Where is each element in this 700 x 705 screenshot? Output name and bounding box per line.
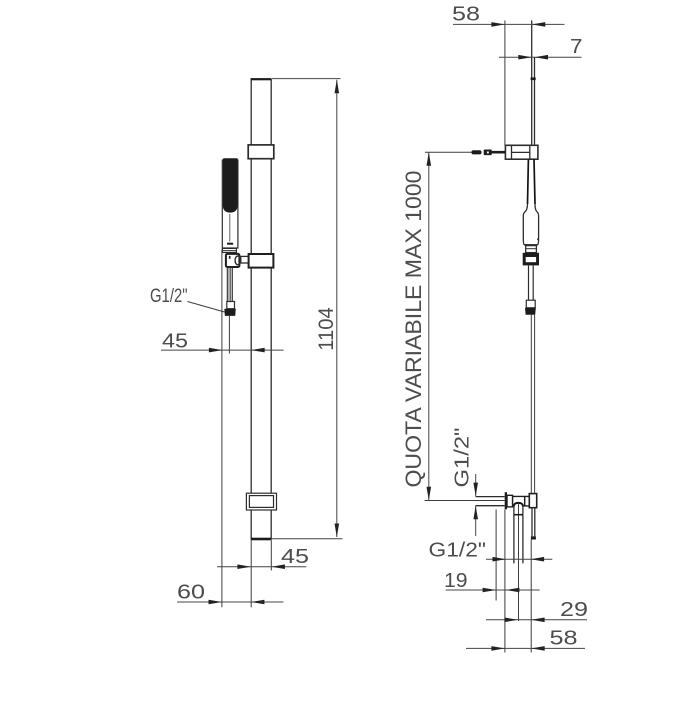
svg-text:G1/2": G1/2" bbox=[429, 540, 487, 562]
svg-text:QUOTA VARIABILE MAX 1000: QUOTA VARIABILE MAX 1000 bbox=[401, 171, 426, 488]
svg-text:60: 60 bbox=[177, 582, 205, 604]
svg-text:G1/2": G1/2" bbox=[150, 286, 188, 307]
svg-text:45: 45 bbox=[162, 330, 188, 352]
svg-text:1104: 1104 bbox=[315, 307, 338, 351]
svg-text:58: 58 bbox=[550, 628, 578, 650]
svg-text:58: 58 bbox=[452, 4, 480, 26]
svg-text:45: 45 bbox=[281, 546, 309, 568]
svg-text:G1/2": G1/2" bbox=[452, 428, 474, 488]
svg-text:29: 29 bbox=[560, 599, 588, 621]
svg-text:7: 7 bbox=[570, 36, 583, 58]
svg-text:19: 19 bbox=[444, 570, 468, 592]
